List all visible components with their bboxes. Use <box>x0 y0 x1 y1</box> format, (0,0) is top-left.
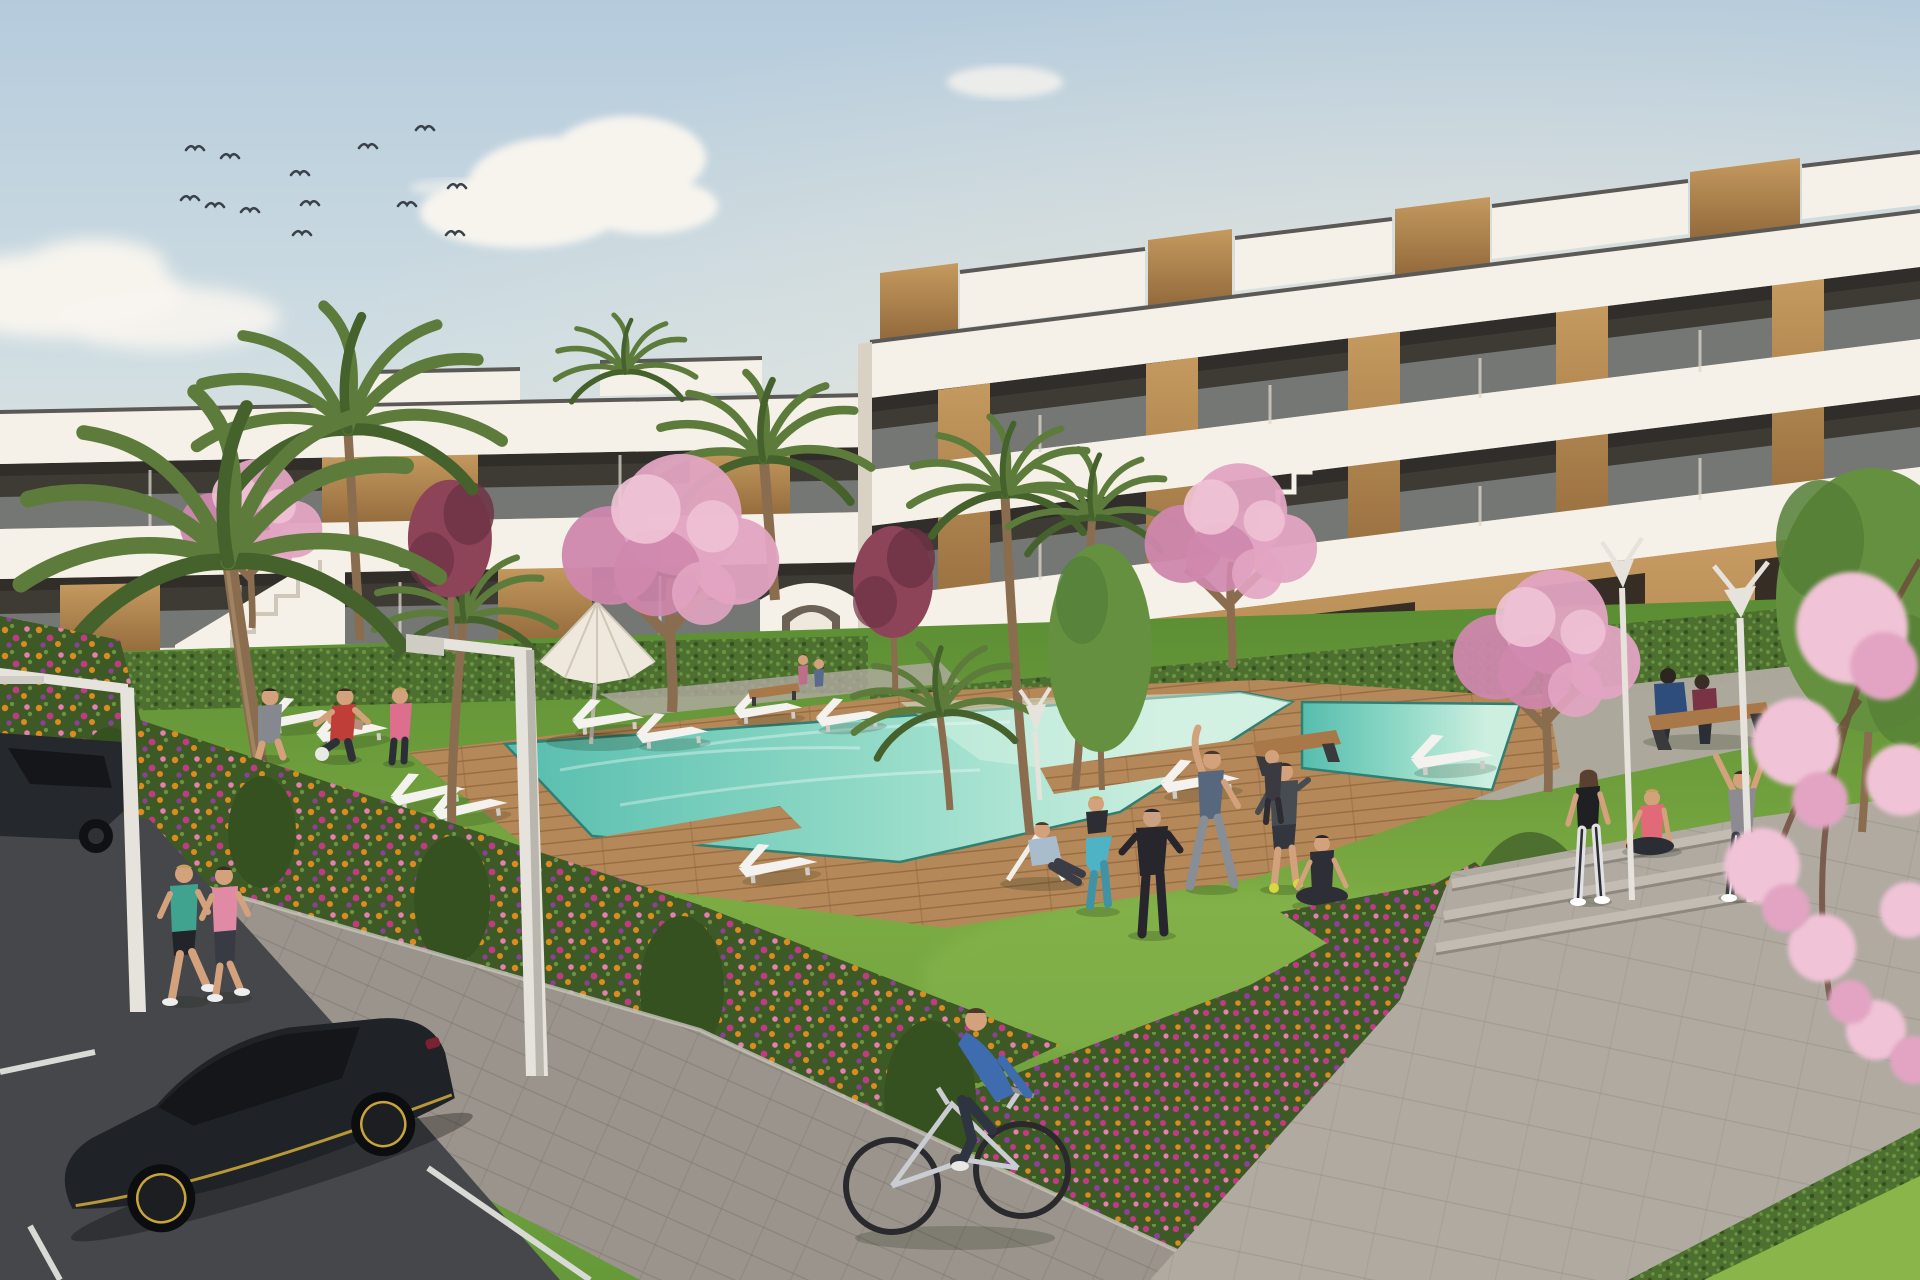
cloud-wisp <box>410 179 494 197</box>
rendered-scene <box>0 0 1920 1280</box>
cloud-small <box>947 66 1063 98</box>
scene-canvas <box>0 0 1920 1280</box>
